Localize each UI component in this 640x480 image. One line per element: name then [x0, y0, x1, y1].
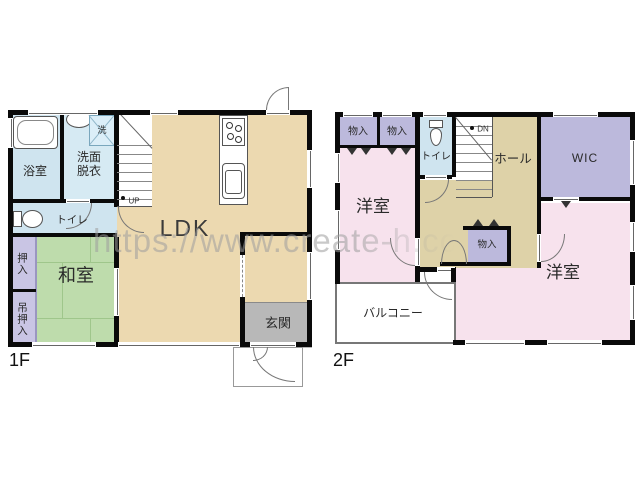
stair-tread [456, 171, 492, 172]
up-dot [121, 196, 125, 200]
floorplan-canvas: 浴室 洗面 脱衣 洗 トイレ UP LDK 押入 吊押入 和室 玄関 1F [0, 0, 640, 480]
wall [537, 197, 630, 201]
folding-door-mark [489, 219, 499, 226]
window [150, 110, 178, 115]
toilet2-label: トイレ [421, 151, 451, 163]
washroom-label-line2: 脱衣 [77, 164, 101, 178]
wall [8, 199, 117, 203]
floor1-label: 1F [9, 350, 30, 371]
burner-icon [227, 133, 234, 140]
bathroom-label: 浴室 [23, 165, 47, 179]
folding-door-mark [473, 219, 483, 226]
window [423, 112, 447, 117]
entrance-label: 玄関 [265, 317, 291, 332]
stair-tread [456, 189, 492, 190]
wic-label: WIC [572, 152, 598, 166]
stair-tread [456, 135, 492, 136]
folding-door-mark [401, 148, 411, 155]
storage2-label: 物入 [387, 126, 407, 138]
wall [60, 110, 64, 202]
sliding-door-line [242, 255, 243, 297]
stair-tread [117, 181, 152, 182]
bedroom-right-lower [456, 268, 541, 340]
stairs-1f [117, 110, 152, 207]
fusuma-opening [114, 268, 119, 316]
window [307, 150, 312, 188]
closet-fusuma-line [35, 237, 37, 347]
folding-door-mark [387, 148, 397, 155]
tatami-line [36, 262, 117, 263]
window [465, 340, 525, 345]
closet-label: 押入 [16, 253, 28, 276]
stair-tread [117, 154, 152, 155]
washroom-label-line1: 洗面 [77, 150, 101, 164]
balcony-label: バルコニー [363, 307, 423, 321]
japanese-room-label: 和室 [58, 266, 94, 287]
stair-tread [456, 180, 492, 181]
folding-door-mark [361, 148, 371, 155]
storage3-label: 物入 [477, 241, 496, 252]
tatami-line [90, 237, 91, 262]
hanging-closet-label: 吊押入 [16, 302, 28, 337]
stove [222, 118, 245, 146]
stairs2-bottom-line [456, 197, 492, 198]
window [630, 285, 635, 320]
window [335, 153, 340, 183]
stair-tread [117, 190, 152, 191]
hall-label: ホール [494, 152, 532, 166]
wall [463, 226, 507, 230]
toilet2-tank [429, 120, 443, 128]
stair-tread [117, 163, 152, 164]
door-opening [266, 110, 290, 115]
stair-tread [117, 145, 152, 146]
burner-icon [235, 125, 242, 132]
window [32, 342, 96, 347]
window [553, 112, 598, 117]
exterior-door-arc [266, 87, 289, 110]
watermark-text: https://www.create-h.co [93, 222, 459, 260]
dn-dot [470, 126, 474, 130]
burner-icon [226, 122, 233, 129]
storage1-label: 物入 [348, 126, 368, 138]
wall [114, 110, 119, 207]
window [28, 110, 98, 115]
stair-tread [117, 172, 152, 173]
window [630, 222, 635, 252]
dn-label: DN [477, 124, 489, 133]
stair-tread [456, 144, 492, 145]
stair-tread [456, 162, 492, 163]
floor2-label: 2F [333, 350, 354, 371]
stairs2-right-line [492, 117, 493, 197]
toilet-tank [13, 211, 22, 227]
hall-upper [492, 117, 540, 180]
bathtub-inner [17, 120, 54, 145]
folding-door-mark [561, 201, 571, 208]
toilet-bowl [22, 210, 43, 228]
wall [507, 226, 511, 266]
window [382, 112, 412, 117]
toilet-label: トイレ [56, 214, 88, 226]
bedroom-right-label: 洋室 [546, 263, 580, 283]
burner-icon [235, 136, 242, 143]
window [547, 340, 602, 345]
wall [377, 117, 380, 147]
door-leaf [288, 87, 289, 110]
window [343, 112, 373, 117]
window [8, 118, 13, 148]
tatami-line [36, 318, 117, 319]
laundry-label: 洗 [97, 125, 106, 135]
window [630, 140, 635, 185]
kitchen-sink-basin [225, 170, 242, 194]
up-label: UP [128, 196, 139, 205]
window [118, 342, 240, 347]
bedroom-left-label: 洋室 [356, 197, 390, 217]
folding-door-mark [347, 148, 357, 155]
washroom-label: 洗面 脱衣 [77, 151, 101, 179]
